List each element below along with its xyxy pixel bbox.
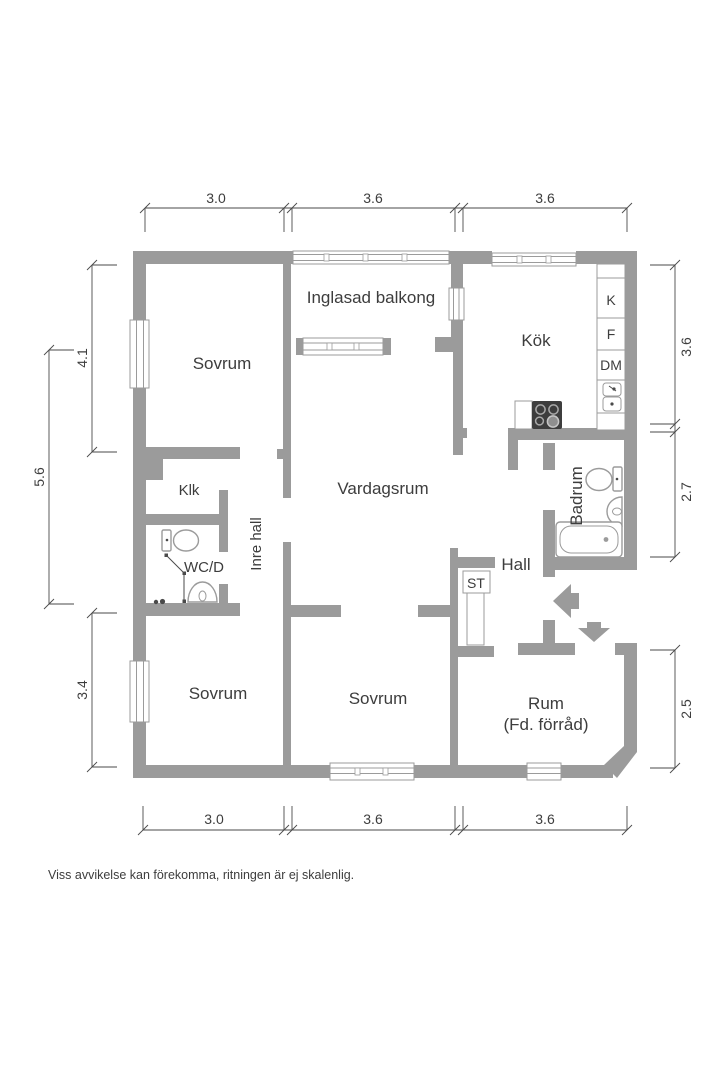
dim-bottom-2: 3.6 (363, 811, 383, 827)
room-label-sovrum-top: Sovrum (193, 354, 252, 373)
room-label-st: ST (467, 575, 485, 591)
wc-sink-icon (188, 582, 217, 602)
dim-left-inner-top: 4.1 (74, 348, 90, 368)
room-label-rum-line1: Rum (528, 694, 564, 713)
appliance-label-fridge: K (606, 292, 616, 308)
entry-arrow-left-icon (553, 584, 579, 618)
kitchen-counter-left (515, 401, 532, 429)
floor-plan: 3.0 3.6 3.6 3.0 3.6 3.6 4.1 5.6 3.4 3.6 … (0, 0, 720, 1080)
dim-left-inner-bottom: 3.4 (74, 680, 90, 700)
bedroom-top-left-window (130, 320, 149, 388)
st-closet-body (467, 593, 484, 645)
room-label-klk: Klk (179, 482, 200, 499)
room-label-sovrum-bottom-mid: Sovrum (349, 689, 408, 708)
bathroom-fixtures (556, 467, 622, 557)
dim-top-2: 3.6 (363, 190, 383, 206)
wc-toilet-icon (162, 530, 199, 551)
room-label-inner-hall: Inre hall (248, 517, 265, 570)
room-labels: Sovrum Inglasad balkong Kök Vardagsrum K… (179, 288, 622, 734)
kitchen-top-window (492, 253, 576, 266)
balcony-kitchen-window (449, 288, 464, 320)
kitchen-sink-icon (603, 383, 621, 411)
dim-right-1: 3.6 (678, 337, 694, 357)
room-label-rum-line2: (Fd. förråd) (503, 715, 588, 734)
bathtub-icon (556, 522, 622, 557)
room-label-wcd: WC/D (184, 559, 224, 576)
entry-arrow-down-icon (578, 622, 610, 642)
rum-bottom-window (527, 763, 561, 780)
room-label-balcony: Inglasad balkong (307, 288, 436, 307)
dim-right-3: 2.5 (678, 699, 694, 719)
appliance-label-dishwasher: DM (600, 357, 622, 373)
stove-icon (532, 401, 562, 429)
dim-bottom-1: 3.0 (204, 811, 224, 827)
room-label-bathroom: Badrum (567, 466, 586, 526)
dim-right-2: 2.7 (678, 482, 694, 502)
dimension-labels: 3.0 3.6 3.6 3.0 3.6 3.6 4.1 5.6 3.4 3.6 … (31, 190, 694, 827)
room-label-kitchen: Kök (521, 331, 551, 350)
room-label-hall: Hall (501, 555, 530, 574)
bedroom-bottom-left-window (130, 661, 149, 722)
balcony-glazing-window (293, 251, 449, 264)
room-label-sovrum-bottom-left: Sovrum (189, 684, 248, 703)
appliance-label-freezer: F (607, 326, 616, 342)
dim-top-1: 3.0 (206, 190, 226, 206)
sovrum-bottom-window (330, 763, 414, 780)
disclaimer-text: Viss avvikelse kan förekomma, ritningen … (48, 868, 354, 882)
dim-top-3: 3.6 (535, 190, 555, 206)
dim-left-outer: 5.6 (31, 467, 47, 487)
dim-bottom-3: 3.6 (535, 811, 555, 827)
entry-arrows (553, 584, 610, 642)
balcony-bottom-window (303, 338, 383, 355)
bathroom-toilet-icon (586, 467, 622, 491)
wc-door-swing (165, 554, 187, 604)
room-label-living: Vardagsrum (337, 479, 428, 498)
